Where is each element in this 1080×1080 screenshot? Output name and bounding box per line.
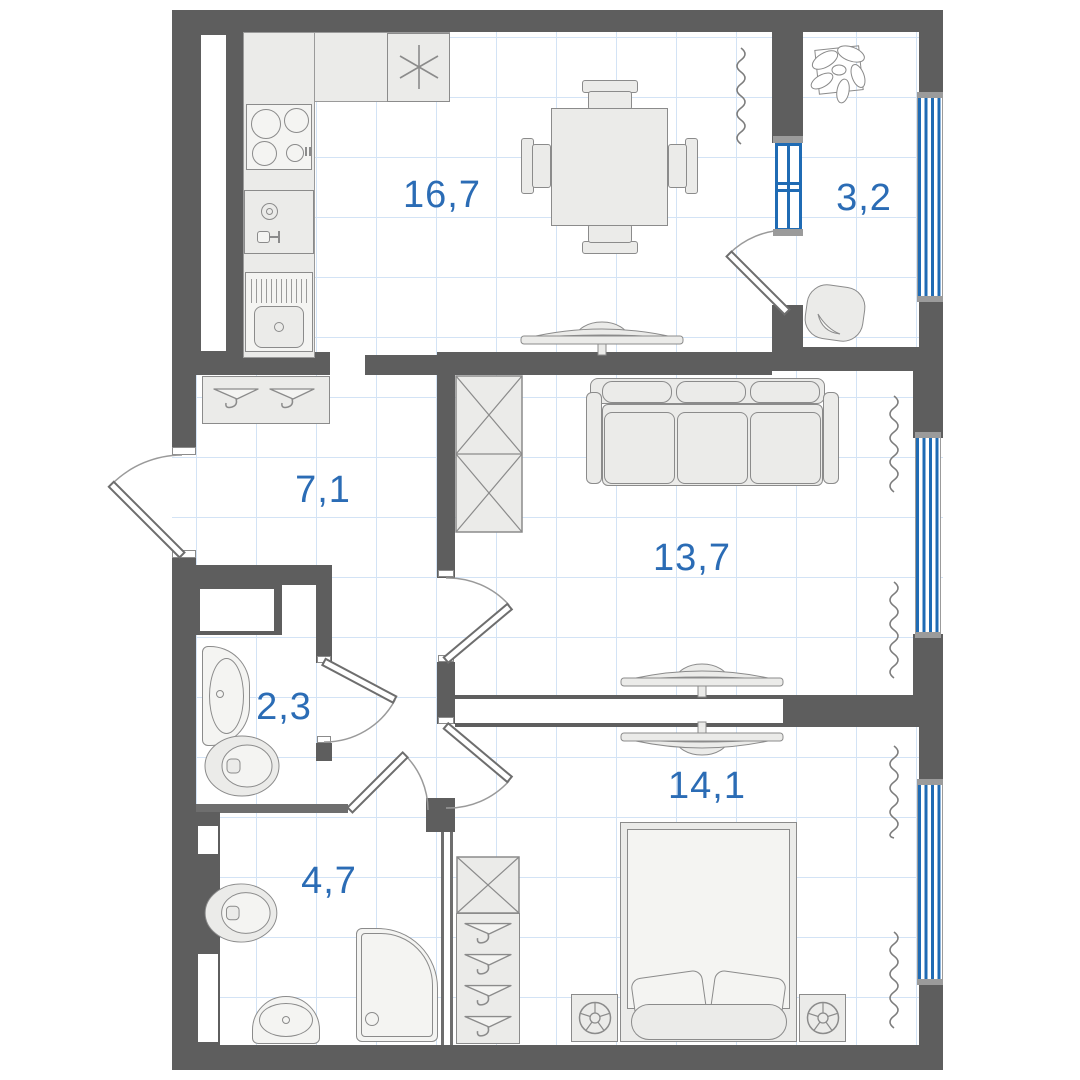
- sofa-cushion: [676, 381, 746, 403]
- tap-icon: [278, 231, 280, 243]
- curtain-icon: [886, 744, 902, 840]
- stove-mark: [309, 147, 311, 156]
- hanger-icon: [463, 1013, 513, 1041]
- toilet-icon: [202, 882, 280, 944]
- room-area-label-balcony: 3,2: [836, 179, 892, 217]
- tv-icon: [519, 308, 685, 356]
- faucet-icon: [282, 1016, 290, 1024]
- sofa-armrest: [586, 392, 602, 484]
- dining-table: [551, 108, 668, 226]
- wall: [172, 1045, 943, 1070]
- wall: [172, 558, 196, 1070]
- wall-niche: [198, 826, 218, 854]
- shower-drain: [365, 1012, 379, 1026]
- window-sill: [773, 136, 803, 143]
- room-area-label-kitchen-living: 16,7: [403, 176, 481, 214]
- room-area-label-living-room: 13,7: [653, 539, 731, 577]
- houseplant-icon: [805, 36, 875, 108]
- chair: [532, 144, 551, 188]
- armchair-icon: [802, 280, 870, 348]
- blanket-roll: [631, 1004, 787, 1040]
- wall: [919, 296, 943, 352]
- washing-machine-knob: [274, 322, 284, 332]
- tv-icon: [619, 721, 785, 769]
- wardrobe: [455, 375, 523, 533]
- living-room-window: [915, 432, 941, 638]
- lamp-icon: [805, 1000, 841, 1036]
- faucet-icon: [216, 690, 224, 698]
- room-area-label-bedroom: 14,1: [668, 767, 746, 805]
- living-room-door: [437, 568, 557, 678]
- toilet-icon: [203, 734, 281, 798]
- window-sill: [917, 92, 943, 98]
- wall: [913, 368, 943, 438]
- room-area-label-wc: 2,3: [256, 688, 312, 726]
- chair: [588, 224, 632, 243]
- window-sill: [915, 632, 941, 638]
- wall-niche: [198, 954, 218, 1042]
- wall-niche: [200, 589, 274, 631]
- chair: [668, 144, 687, 188]
- stove-mark: [305, 147, 307, 156]
- wall: [172, 10, 943, 32]
- hanger-icon: [463, 982, 513, 1010]
- washbasin-bowl: [209, 658, 244, 734]
- curtain-icon: [886, 930, 902, 1030]
- burner-icon: [284, 108, 309, 133]
- hanger-icon: [268, 386, 316, 412]
- hanger-icon: [463, 920, 513, 948]
- tap-icon: [257, 231, 270, 243]
- window-sill: [917, 979, 943, 985]
- sofa-cushion: [750, 412, 821, 484]
- floor-plan: 16,7 3,2 7,1 13,7 2,3 4,7 14,1: [0, 0, 1080, 1080]
- bedroom-window: [917, 779, 943, 985]
- bathroom-door: [338, 734, 448, 818]
- tv-icon: [619, 650, 785, 698]
- sofa-cushion: [604, 412, 675, 484]
- faucet-icon: [266, 208, 273, 215]
- kitchen-sink-icon: [244, 190, 314, 254]
- burner-icon: [286, 144, 304, 162]
- curtain-icon: [886, 394, 902, 494]
- window-sill: [917, 779, 943, 785]
- partition-wall: [441, 832, 453, 1045]
- balcony-window: [917, 92, 943, 302]
- window-sill: [915, 432, 941, 438]
- wall: [437, 352, 455, 578]
- wall: [919, 981, 943, 1045]
- room-area-label-hallway: 7,1: [295, 471, 351, 509]
- wall: [919, 727, 943, 783]
- sofa-armrest: [823, 392, 839, 484]
- wall: [919, 32, 943, 96]
- window-sill: [917, 296, 943, 302]
- lamp-icon: [577, 1000, 613, 1036]
- entrance-door: [98, 443, 198, 565]
- wall: [772, 32, 803, 143]
- room-area-label-bathroom: 4,7: [301, 862, 357, 900]
- hanger-icon: [212, 386, 260, 412]
- bedroom-door: [437, 716, 557, 828]
- curtain-icon: [733, 46, 749, 146]
- sofa-cushion: [602, 381, 672, 403]
- wall: [783, 695, 943, 727]
- window-mullion: [778, 182, 799, 192]
- wall-shaft: [201, 35, 226, 351]
- burner-icon: [251, 109, 281, 139]
- wardrobe: [456, 856, 520, 914]
- washing-machine-vent: [251, 279, 307, 303]
- curtain-icon: [886, 580, 902, 680]
- sofa-cushion: [677, 412, 748, 484]
- balcony-door: [713, 220, 805, 332]
- hanger-icon: [463, 951, 513, 979]
- snowflake-icon: [392, 40, 446, 94]
- wall: [172, 350, 196, 455]
- burner-icon: [252, 141, 277, 166]
- wall: [913, 634, 943, 697]
- wall: [196, 565, 332, 585]
- sofa-cushion: [750, 381, 820, 403]
- balcony-door-window: [775, 143, 802, 231]
